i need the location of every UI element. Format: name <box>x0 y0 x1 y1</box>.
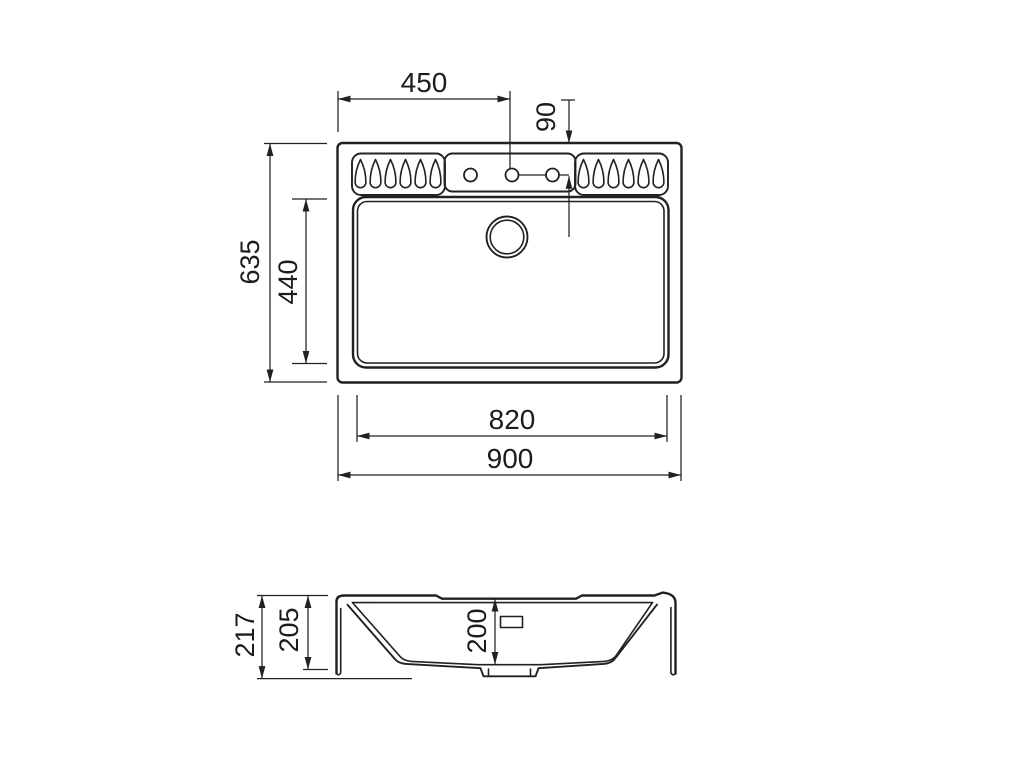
dim-440-label: 440 <box>273 259 303 304</box>
tap-hole-center <box>506 169 519 182</box>
dim-90-label: 90 <box>531 102 561 132</box>
dim-635-label: 635 <box>235 239 265 284</box>
tap-hole-right <box>546 169 559 182</box>
dim-200-label: 200 <box>462 608 492 653</box>
page-background <box>0 0 1024 768</box>
tap-hole-left <box>464 169 477 182</box>
dim-900-label: 900 <box>487 443 534 474</box>
dim-217-label: 217 <box>230 612 260 657</box>
dim-205-label: 205 <box>274 607 304 652</box>
technical-drawing: 450 90 635 440 820 900 <box>0 0 1024 768</box>
dim-450-label: 450 <box>401 67 448 98</box>
dim-820-label: 820 <box>489 404 536 435</box>
